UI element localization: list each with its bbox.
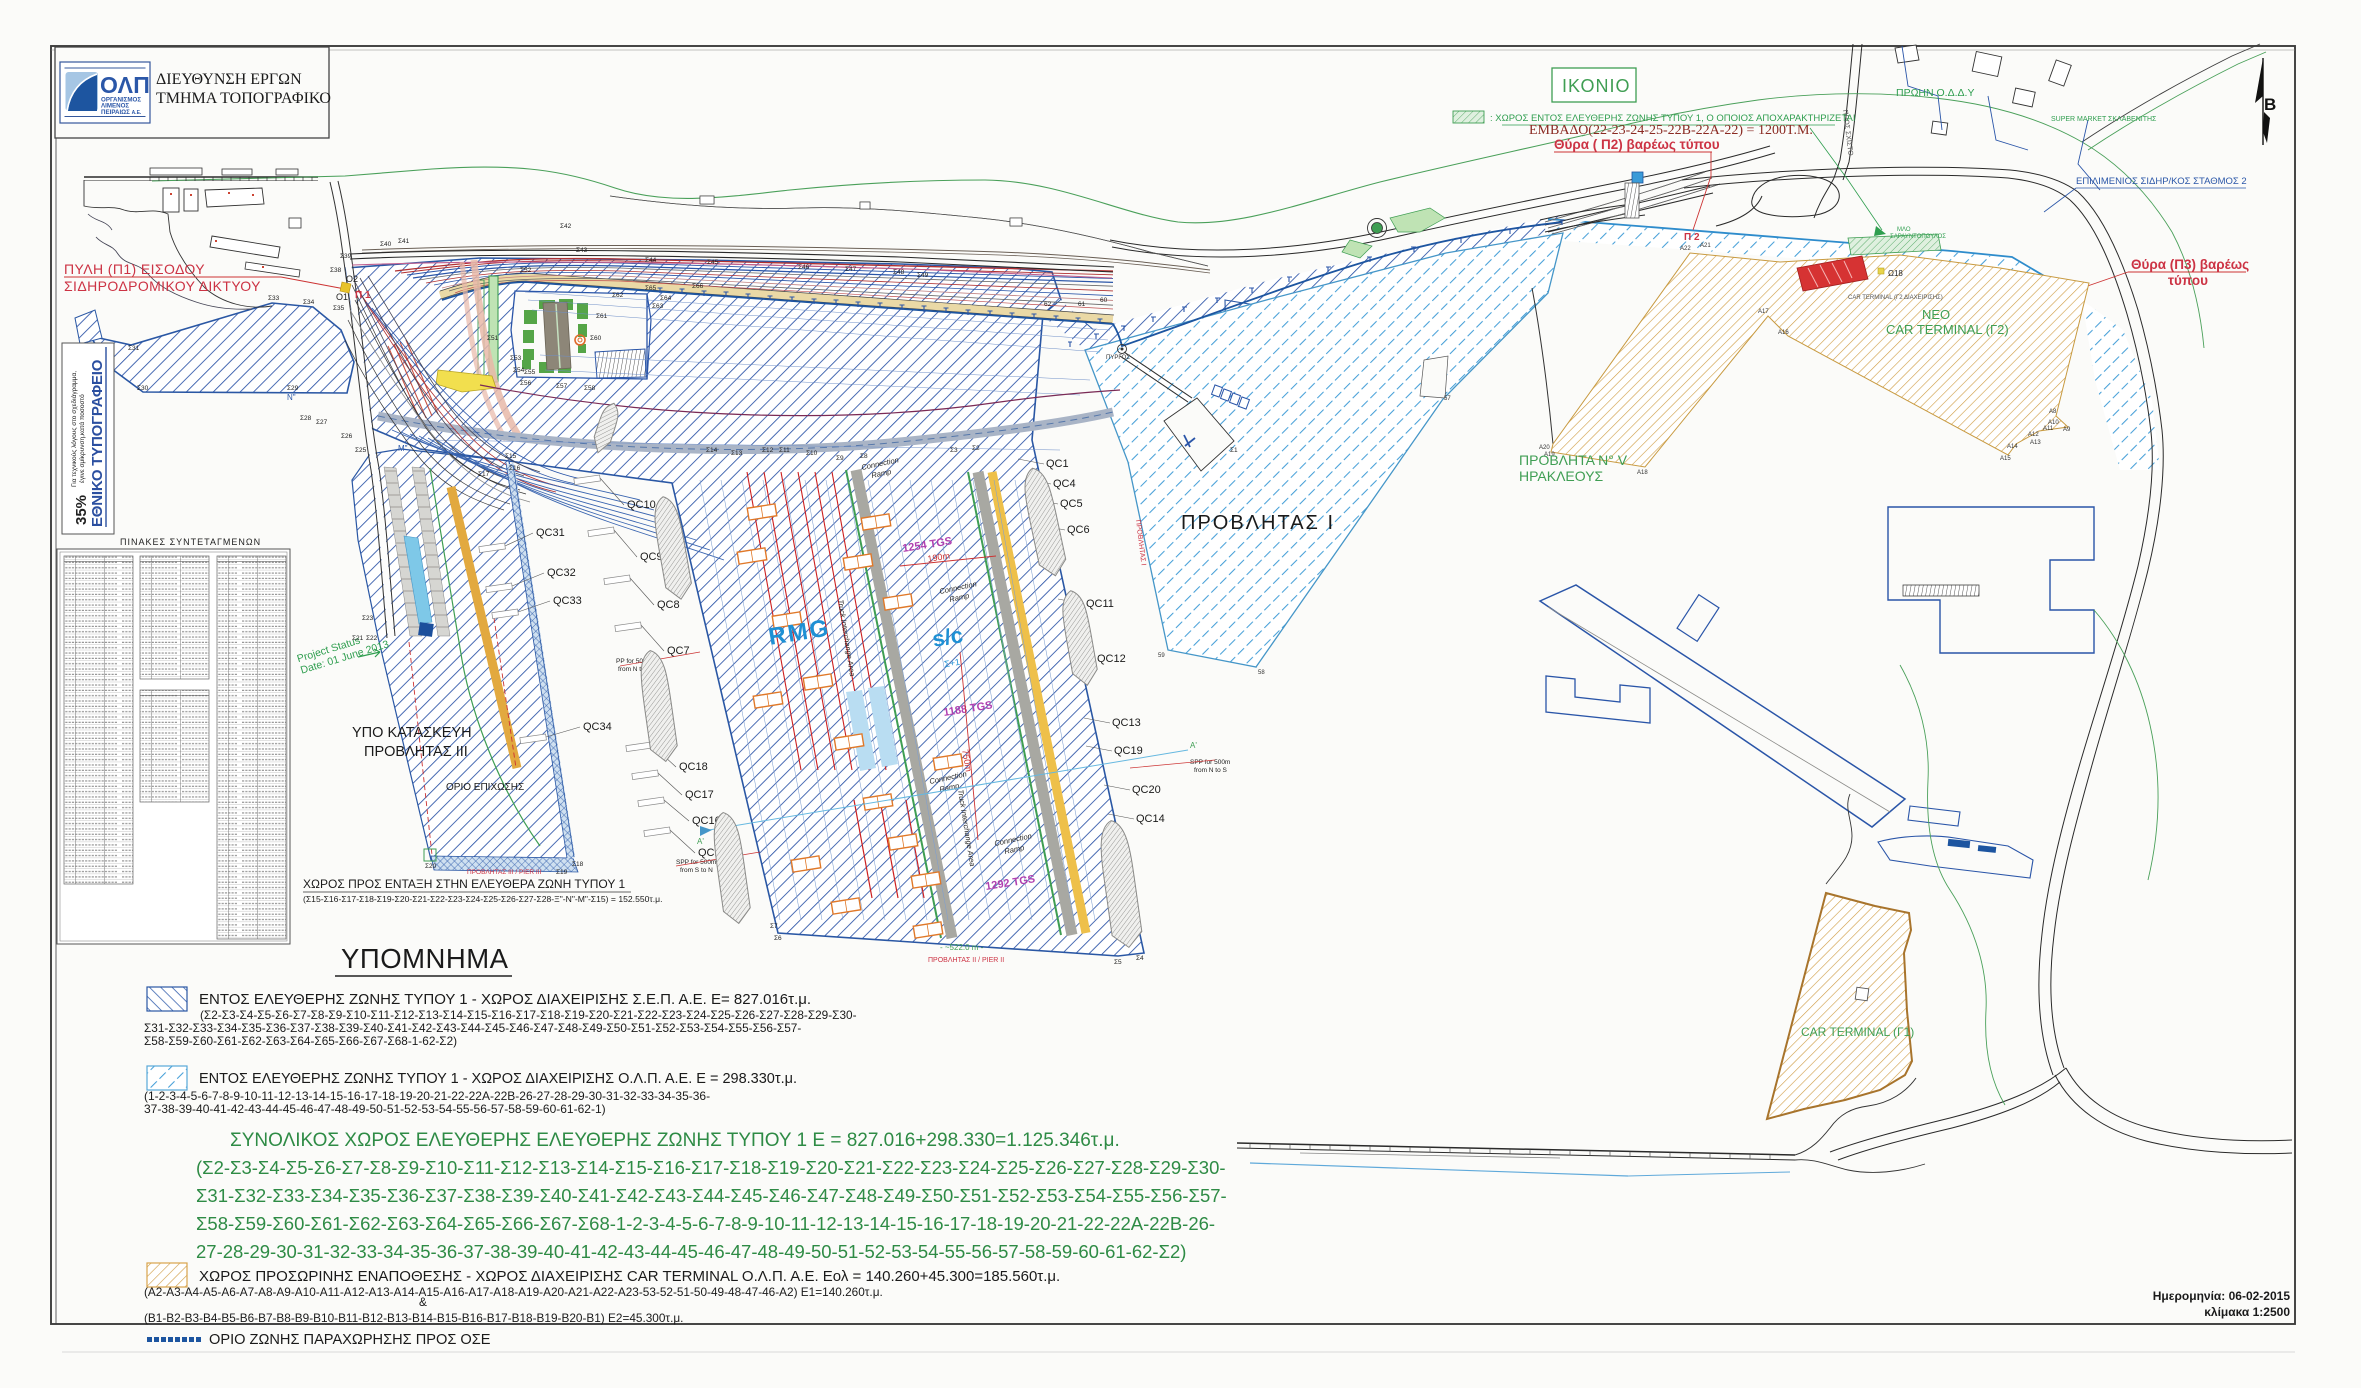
svg-text:Σ14: Σ14: [706, 447, 718, 454]
svg-text:ΧΩΡΟΣ ΠΡΟΣΩΡΙΝΗΣ ΕΝΑΠΟΘΕΣΗΣ -: ΧΩΡΟΣ ΠΡΟΣΩΡΙΝΗΣ ΕΝΑΠΟΘΕΣΗΣ - ΧΩΡΟΣ ΔΙΑΧ…: [199, 1268, 1060, 1285]
svg-text:Π 1: Π 1: [355, 290, 371, 301]
svg-text:QC1: QC1: [1046, 458, 1069, 470]
svg-text:ΔΙΕΥΘΥΝΣΗ ΕΡΓΩΝ: ΔΙΕΥΘΥΝΣΗ ΕΡΓΩΝ: [156, 71, 302, 88]
svg-text:ΕΘΝΙΚΟ ΤΥΠΟΓΡΑΦΕΙΟ: ΕΘΝΙΚΟ ΤΥΠΟΓΡΑΦΕΙΟ: [89, 359, 106, 527]
svg-text:ΠΡΟΒΛΗΤΑΣ Ι: ΠΡΟΒΛΗΤΑΣ Ι: [1181, 512, 1335, 534]
svg-text:Σ64: Σ64: [660, 295, 672, 302]
svg-text:CAR TERMINAL (Γ2): CAR TERMINAL (Γ2): [1886, 322, 2009, 337]
svg-text:ΠΥΛΗ (Π1) ΕΙΣΟΔΟΥ: ΠΥΛΗ (Π1) ΕΙΣΟΔΟΥ: [64, 261, 205, 277]
svg-text:CAR TERMINAL (Γ2 ΔΙΑΧΕΙΡΙΣΗΣ): CAR TERMINAL (Γ2 ΔΙΑΧΕΙΡΙΣΗΣ): [1848, 295, 1943, 301]
svg-text:Σ5: Σ5: [1114, 959, 1122, 966]
svg-text:ΠΥΡΓΟΣ: ΠΥΡΓΟΣ: [1106, 355, 1130, 361]
svg-text:QC5: QC5: [1060, 498, 1083, 510]
svg-text:(Α2-Α3-Α4-Α5-Α6-Α7-Α8-Α9-Α10-Α: (Α2-Α3-Α4-Α5-Α6-Α7-Α8-Α9-Α10-Α11-Α12-Α13…: [144, 1285, 883, 1299]
svg-text:ΣΑΡΑΥΝΤΟΠΟΥΛΟΣ: ΣΑΡΑΥΝΤΟΠΟΥΛΟΣ: [1890, 234, 1946, 240]
svg-text:ΕΝΤΟΣ ΕΛΕΥΘΕΡΗΣ ΖΩΝΗΣ ΤΥΠΟΥ 1: ΕΝΤΟΣ ΕΛΕΥΘΕΡΗΣ ΖΩΝΗΣ ΤΥΠΟΥ 1 - ΧΩΡΟΣ ΔΙ…: [199, 991, 811, 1008]
svg-text:Σ31-Σ32-Σ33-Σ34-Σ35-Σ36-Σ37-Σ3: Σ31-Σ32-Σ33-Σ34-Σ35-Σ36-Σ37-Σ38-Σ39-Σ40-…: [144, 1021, 801, 1035]
svg-text:Σ57: Σ57: [556, 383, 568, 390]
svg-text:QC19: QC19: [1114, 745, 1143, 757]
svg-text:62: 62: [1044, 301, 1052, 308]
svg-text:ΟΡΙΟ ΖΩΝΗΣ ΠΑΡΑΧΩΡΗΣΗΣ ΠΡΟΣ ΟΣ: ΟΡΙΟ ΖΩΝΗΣ ΠΑΡΑΧΩΡΗΣΗΣ ΠΡΟΣ ΟΣΕ: [209, 1332, 491, 1348]
svg-text:from S to N: from S to N: [680, 867, 713, 874]
svg-text:57: 57: [1444, 396, 1451, 402]
svg-text:Σ66: Σ66: [692, 283, 704, 290]
svg-text:A18: A18: [1637, 470, 1648, 476]
svg-text:(Β1-Β2-Β3-Β4-Β5-Β6-Β7-Β8-Β9-Β1: (Β1-Β2-Β3-Β4-Β5-Β6-Β7-Β8-Β9-Β10-Β11-Β12-…: [144, 1311, 683, 1325]
svg-text:Σ20: Σ20: [425, 863, 437, 870]
svg-text:ΠΡΟΒΛΗΤΑΣ ΙΙ / PIER ΙΙ: ΠΡΟΒΛΗΤΑΣ ΙΙ / PIER ΙΙ: [928, 957, 1004, 964]
svg-text:Σ58-Σ59-Σ60-Σ61-Σ62-Σ63-Σ64-Σ6: Σ58-Σ59-Σ60-Σ61-Σ62-Σ63-Σ64-Σ65-Σ66-Σ67-…: [196, 1213, 1215, 1234]
svg-text:Για τεχνικούς λόγους στο σχεδι: Για τεχνικούς λόγους στο σχεδιάγραμμα,: [70, 371, 78, 487]
svg-text:Σ40: Σ40: [380, 241, 392, 248]
svg-text:Σ31: Σ31: [128, 345, 140, 352]
svg-text:ΠΡΩΗΝ Ο.Δ.Δ.Υ: ΠΡΩΗΝ Ο.Δ.Δ.Υ: [1896, 87, 1974, 99]
svg-text:Θύρα ( Π2) βαρέως τύπου: Θύρα ( Π2) βαρέως τύπου: [1554, 137, 1720, 152]
svg-text:58: 58: [1258, 670, 1265, 676]
svg-text:ΠΡΟΒΛΗΤΑ Ν° V: ΠΡΟΒΛΗΤΑ Ν° V: [1519, 452, 1628, 468]
svg-text:ΙΚΟΝΙΟ: ΙΚΟΝΙΟ: [1562, 76, 1630, 96]
svg-text:Σ26: Σ26: [341, 433, 353, 440]
svg-text:ΠΡΟΒΛΗΤΑΣ ΙΙΙ / PIER ΙΙΙ: ΠΡΟΒΛΗΤΑΣ ΙΙΙ / PIER ΙΙΙ: [467, 869, 542, 876]
svg-text:QC14: QC14: [1136, 813, 1165, 825]
svg-text:Σ63: Σ63: [652, 303, 664, 310]
svg-text:Β: Β: [2264, 95, 2276, 114]
svg-text:QC11: QC11: [1086, 598, 1114, 610]
svg-text:QC32: QC32: [547, 567, 576, 579]
svg-text:Σ16: Σ16: [509, 465, 521, 472]
svg-text:έγινε σμίκρυνση,κατά ποσοστό: έγινε σμίκρυνση,κατά ποσοστό: [78, 394, 86, 483]
svg-text:Θύρα (Π3) βαρέως: Θύρα (Π3) βαρέως: [2131, 257, 2249, 272]
svg-text:59: 59: [1158, 653, 1165, 659]
svg-text:Ν": Ν": [287, 393, 296, 402]
svg-text:ΤΜΗΜΑ ΤΟΠΟΓΡΑΦΙΚΟ: ΤΜΗΜΑ ΤΟΠΟΓΡΑΦΙΚΟ: [156, 90, 331, 107]
svg-text:(Σ2-Σ3-Σ4-Σ5-Σ6-Σ7-Σ8-Σ9-Σ10-Σ: (Σ2-Σ3-Σ4-Σ5-Σ6-Σ7-Σ8-Σ9-Σ10-Σ11-Σ12-Σ13…: [200, 1008, 857, 1022]
svg-text:Σ41: Σ41: [398, 238, 410, 245]
svg-text:ΕΠΙΛΙΜΕΝΙΟΣ ΣΙΔΗΡ/ΚΟΣ ΣΤΑΘΜΟΣ: ΕΠΙΛΙΜΕΝΙΟΣ ΣΙΔΗΡ/ΚΟΣ ΣΤΑΘΜΟΣ 2: [2076, 176, 2247, 187]
svg-text:Σ22: Σ22: [366, 635, 378, 642]
svg-text:ΥΠΟ ΚΑΤΑΣΚΕΥΗ: ΥΠΟ ΚΑΤΑΣΚΕΥΗ: [352, 725, 472, 741]
svg-text:Σ6: Σ6: [774, 935, 782, 942]
svg-text:κλίμακα 1:2500: κλίμακα 1:2500: [2204, 1305, 2290, 1319]
svg-text:CAR TERMINAL (Γ1): CAR TERMINAL (Γ1): [1801, 1025, 1914, 1039]
svg-text:ΠΡΟΒΛΗΤΑΣ ΙΙΙ: ΠΡΟΒΛΗΤΑΣ ΙΙΙ: [364, 744, 468, 760]
svg-text:A17: A17: [1758, 309, 1769, 315]
svg-text:Ο2: Ο2: [346, 274, 358, 284]
svg-text:QC10: QC10: [627, 499, 656, 511]
svg-text:Σ33: Σ33: [268, 295, 280, 302]
svg-text:QC6: QC6: [1067, 524, 1090, 536]
svg-text:A13: A13: [2030, 440, 2041, 446]
svg-text:Α': Α': [697, 837, 704, 846]
svg-text:Σ44: Σ44: [645, 257, 657, 264]
svg-text:35%: 35%: [73, 495, 90, 525]
svg-text:A15: A15: [2000, 456, 2011, 462]
svg-text:QC33: QC33: [553, 595, 582, 607]
svg-text:A8: A8: [2049, 409, 2057, 415]
svg-text:Σ18: Σ18: [572, 861, 584, 868]
svg-text:Σ54: Σ54: [513, 367, 525, 374]
svg-text:Σ27: Σ27: [316, 419, 328, 426]
svg-text:Σ31-Σ32-Σ33-Σ34-Σ35-Σ36-Σ37-Σ3: Σ31-Σ32-Σ33-Σ34-Σ35-Σ36-Σ37-Σ38-Σ39-Σ40-…: [196, 1185, 1227, 1206]
svg-text:QC7: QC7: [667, 645, 690, 657]
svg-text:ΥΠΟΜΝΗΜΑ: ΥΠΟΜΝΗΜΑ: [341, 943, 509, 974]
svg-text:Ο1: Ο1: [336, 292, 348, 302]
svg-text:A11: A11: [2043, 426, 2054, 432]
svg-text:Σ35: Σ35: [333, 305, 345, 312]
svg-text:Σ65: Σ65: [645, 285, 657, 292]
svg-text:A22: A22: [1680, 246, 1691, 252]
svg-text:ΟΛΠ: ΟΛΠ: [100, 72, 150, 98]
svg-text:Σ38: Σ38: [330, 267, 342, 274]
svg-text:A14: A14: [2007, 444, 2018, 450]
svg-text:QC8: QC8: [657, 599, 680, 611]
svg-text:Σ52: Σ52: [520, 267, 532, 274]
svg-text:Σ23: Σ23: [362, 615, 374, 622]
svg-text:QC18: QC18: [679, 761, 708, 773]
svg-text:61: 61: [1078, 301, 1086, 308]
svg-text:QC34: QC34: [583, 721, 612, 733]
svg-text:Σ39: Σ39: [340, 253, 352, 260]
svg-text:(1-2-3-4-5-6-7-8-9-10-11-12-13: (1-2-3-4-5-6-7-8-9-10-11-12-13-14-15-16-…: [144, 1089, 710, 1103]
svg-text:Σ55: Σ55: [524, 369, 536, 376]
svg-text:Μ": Μ": [398, 444, 408, 453]
svg-text:SUPER MARKET ΣΚΛΑΒΕΝΙΤΗΣ: SUPER MARKET ΣΚΛΑΒΕΝΙΤΗΣ: [2051, 116, 2157, 123]
svg-text:27-28-29-30-31-32-33-34-35-36-: 27-28-29-30-31-32-33-34-35-36-37-38-39-4…: [196, 1241, 1186, 1262]
svg-text:Σ4: Σ4: [1136, 955, 1144, 962]
svg-text:Σ45: Σ45: [707, 259, 719, 266]
svg-text:Σ43: Σ43: [576, 247, 588, 254]
svg-text:Σ8: Σ8: [860, 453, 868, 460]
svg-text:A10: A10: [2048, 420, 2059, 426]
svg-text:ΜΛΟ: ΜΛΟ: [1897, 227, 1911, 233]
svg-text:Σ47: Σ47: [845, 266, 857, 273]
svg-text:QC20: QC20: [1132, 784, 1161, 796]
svg-text:Σ1: Σ1: [1230, 447, 1238, 454]
svg-text:Σ53: Σ53: [510, 355, 522, 362]
svg-text:Σ58: Σ58: [584, 385, 596, 392]
svg-text:Σ10: Σ10: [806, 450, 818, 457]
svg-text:(Σ2-Σ3-Σ4-Σ5-Σ6-Σ7-Σ8-Σ9-Σ10-Σ: (Σ2-Σ3-Σ4-Σ5-Σ6-Σ7-Σ8-Σ9-Σ10-Σ11-Σ12-Σ13…: [196, 1157, 1226, 1178]
svg-text:(Σ15-Σ16-Σ17-Σ18-Σ19-Σ20-Σ21-Σ: (Σ15-Σ16-Σ17-Σ18-Σ19-Σ20-Σ21-Σ22-Σ23-Σ24…: [303, 894, 663, 904]
svg-text:ΧΩΡΟΣ ΠΡΟΣ ΕΝΤΑΞΗ ΣΤΗΝ ΕΛΕΥ: ΧΩΡΟΣ ΠΡΟΣ ΕΝΤΑΞΗ ΣΤΗΝ ΕΛΕΥΘΕΡΑ ΖΩΝΗ ΤΥΠ…: [303, 877, 625, 891]
svg-text:s/c: s/c: [931, 622, 965, 651]
svg-text:Σ3: Σ3: [950, 447, 958, 454]
svg-text:Σ61: Σ61: [596, 313, 608, 320]
svg-text:from N to S: from N to S: [1194, 767, 1228, 774]
svg-text:ΣΥΝΟΛΙΚΟΣ ΧΩΡΟΣ ΕΛΕΥΘΕΡΗΣ ΕΛΕΥ: ΣΥΝΟΛΙΚΟΣ ΧΩΡΟΣ ΕΛΕΥΘΕΡΗΣ ΕΛΕΥΘΕΡΗΣ ΖΩΝΗ…: [230, 1130, 1120, 1151]
svg-text:ΣΙΔΗΡΟΔΡΟΜΙΚΟΥ ΔΙΚΤΥΟΥ: ΣΙΔΗΡΟΔΡΟΜΙΚΟΥ ΔΙΚΤΥΟΥ: [64, 278, 261, 294]
svg-text:QC31: QC31: [536, 527, 565, 539]
svg-text:- ~522.0 m -: - ~522.0 m -: [940, 943, 984, 952]
svg-text:Σ19: Σ19: [556, 869, 568, 876]
svg-text:37-38-39-40-41-42-43-44-45-46-: 37-38-39-40-41-42-43-44-45-46-47-48-49-5…: [144, 1102, 606, 1116]
svg-text:ΝΕΟ: ΝΕΟ: [1922, 307, 1950, 322]
svg-text:Σ49: Σ49: [917, 272, 929, 279]
svg-text:ΟΡΙΟ ΕΠΙΧΩΣΗΣ: ΟΡΙΟ ΕΠΙΧΩΣΗΣ: [446, 782, 524, 793]
svg-text:Σ56: Σ56: [520, 380, 532, 387]
svg-text:Σ12: Σ12: [762, 447, 774, 454]
svg-text:ΠΙΝΑΚΕΣ ΣΥΝΤΕΤΑΓΜΕΝΩΝ: ΠΙΝΑΚΕΣ ΣΥΝΤΕΤΑΓΜΕΝΩΝ: [120, 537, 261, 547]
svg-text:Σ28: Σ28: [300, 415, 312, 422]
svg-text:Σ9: Σ9: [836, 455, 844, 462]
svg-text:Σ2: Σ2: [972, 445, 980, 452]
svg-text:τύπου: τύπου: [2168, 273, 2208, 288]
svg-text:Σ30: Σ30: [137, 385, 149, 392]
svg-text:Σ46: Σ46: [798, 264, 810, 271]
svg-text:A12: A12: [2028, 432, 2039, 438]
svg-text:Σ51: Σ51: [487, 335, 499, 342]
svg-text:Σ21: Σ21: [352, 635, 364, 642]
svg-text:Σ15: Σ15: [505, 453, 517, 460]
svg-text:Σ17: Σ17: [478, 471, 490, 478]
svg-text:Σ48: Σ48: [893, 269, 905, 276]
svg-text:QC13: QC13: [1112, 717, 1141, 729]
svg-text:ΠΕΙΡΑΙΩΣ Α.Ε.: ΠΕΙΡΑΙΩΣ Α.Ε.: [101, 109, 142, 116]
svg-text:A20: A20: [1539, 445, 1550, 451]
svg-text:Σ7: Σ7: [770, 923, 778, 930]
svg-text:Σ42: Σ42: [560, 223, 572, 230]
svg-text:Π 2: Π 2: [1684, 232, 1700, 243]
svg-text:QC17: QC17: [685, 789, 714, 801]
svg-text:ΗΡΑΚΛΕΟΥΣ: ΗΡΑΚΛΕΟΥΣ: [1519, 468, 1604, 484]
svg-text:Σ60: Σ60: [590, 335, 602, 342]
svg-text:Σ13: Σ13: [731, 450, 743, 457]
svg-text:Σ62: Σ62: [612, 292, 624, 299]
svg-text:ΕΝΤΟΣ ΕΛΕΥΘΕΡΗΣ ΖΩΝΗΣ ΤΥΠΟΥ 1: ΕΝΤΟΣ ΕΛΕΥΘΕΡΗΣ ΖΩΝΗΣ ΤΥΠΟΥ 1 - ΧΩΡΟΣ ΔΙ…: [199, 1071, 797, 1087]
svg-text:Α': Α': [1190, 741, 1197, 750]
svg-text:A9: A9: [2063, 427, 2071, 433]
svg-text:QC4: QC4: [1053, 478, 1076, 490]
svg-text:Σ58-Σ59-Σ60-Σ61-Σ62-Σ63-Σ64-Σ6: Σ58-Σ59-Σ60-Σ61-Σ62-Σ63-Σ64-Σ65-Σ66-Σ67-…: [144, 1034, 457, 1048]
svg-text:Ω18: Ω18: [1888, 269, 1903, 278]
svg-text:SPP for 500m: SPP for 500m: [1190, 759, 1230, 766]
svg-text:ΕΜΒΑΔΟ(22-23-24-25-22Β-22Α-22): ΕΜΒΑΔΟ(22-23-24-25-22Β-22Α-22) = 1200Τ.Μ…: [1529, 123, 1813, 138]
svg-text:Σ11: Σ11: [779, 447, 790, 454]
svg-text:Σ29: Σ29: [287, 385, 299, 392]
svg-text:A16: A16: [1778, 330, 1789, 336]
svg-text:QC12: QC12: [1097, 653, 1126, 665]
svg-text:Σ25: Σ25: [355, 447, 367, 454]
svg-text:Σ34: Σ34: [303, 299, 315, 306]
svg-text:&: &: [419, 1295, 427, 1309]
svg-text:60: 60: [1100, 297, 1108, 304]
svg-text:Ημερομηνία: 06-02-2015: Ημερομηνία: 06-02-2015: [2153, 1289, 2291, 1303]
svg-text:A21: A21: [1700, 243, 1711, 249]
